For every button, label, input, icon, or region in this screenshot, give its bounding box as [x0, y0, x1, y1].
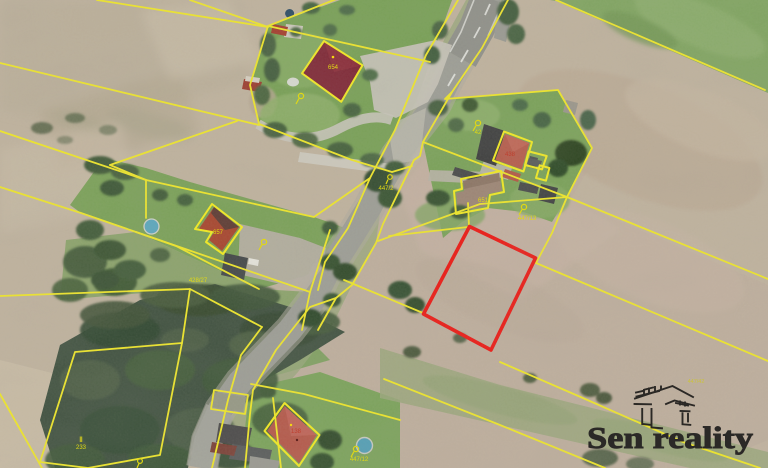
svg-text:Sen reality: Sen reality — [587, 420, 754, 455]
